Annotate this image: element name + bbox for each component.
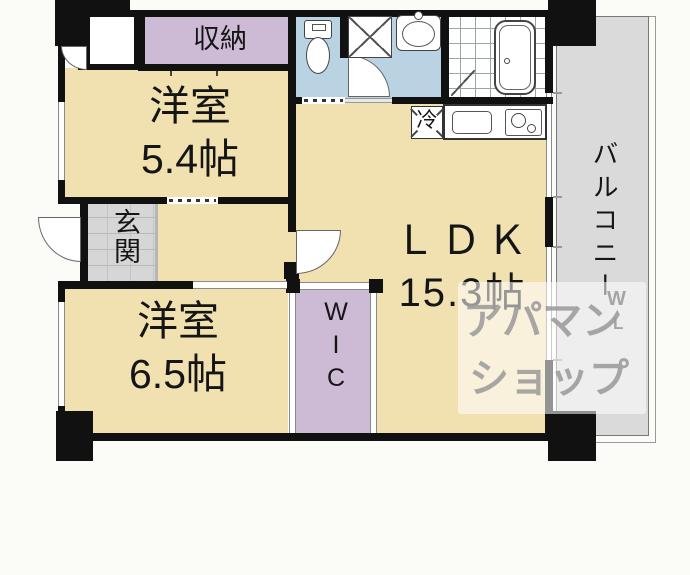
bedroom-small-label: 洋室 bbox=[90, 85, 290, 128]
entrance-label: 玄関 bbox=[106, 208, 145, 266]
bathtub-drain bbox=[504, 58, 510, 64]
basin-tap-icon bbox=[414, 11, 423, 20]
door-threshold bbox=[345, 98, 392, 103]
wic-partition bbox=[289, 293, 296, 433]
window-tick bbox=[553, 196, 562, 198]
window-tick bbox=[553, 246, 562, 248]
watermark-line1: アパマン bbox=[463, 288, 622, 346]
entrance-step-line bbox=[155, 202, 158, 284]
wall-segment bbox=[80, 203, 88, 283]
bathtub-inner-line bbox=[499, 25, 531, 90]
wall-segment bbox=[58, 281, 193, 289]
stove-burner-icon bbox=[527, 124, 536, 133]
watermark-line2: ショップ bbox=[469, 346, 629, 404]
sliding-door bbox=[167, 197, 218, 204]
wic-label: WIC bbox=[321, 298, 350, 397]
refrigerator-label: 冷 bbox=[412, 110, 442, 132]
wall-segment bbox=[80, 10, 553, 17]
window bbox=[58, 302, 65, 406]
window bbox=[58, 102, 65, 180]
closet-door-tick bbox=[216, 71, 218, 76]
wall-segment bbox=[58, 433, 556, 441]
kitchen-sink-icon bbox=[452, 111, 492, 134]
wall-segment bbox=[340, 13, 348, 58]
ldk-label: ＬＤＫ bbox=[375, 220, 553, 262]
watermark-mark-bottom: L bbox=[613, 314, 623, 334]
pillar bbox=[56, 411, 93, 461]
bedroom-large-label: 洋室 bbox=[78, 300, 278, 343]
washer-pan-icon bbox=[348, 16, 392, 58]
window-tick bbox=[553, 92, 562, 94]
toilet-bowl-icon bbox=[306, 37, 330, 74]
entry-door-arc bbox=[38, 217, 81, 262]
pillar bbox=[548, 411, 596, 461]
bath-folding-door bbox=[451, 70, 475, 96]
wall-segment bbox=[58, 197, 167, 204]
stove-burner-icon bbox=[511, 113, 526, 128]
bedroom-small-area: 5.4帖 bbox=[90, 138, 290, 181]
hallway bbox=[152, 200, 296, 285]
refrigerator-space: 冷 bbox=[411, 106, 443, 139]
toilet-flush-button bbox=[312, 24, 326, 31]
closet-door-tick bbox=[170, 71, 172, 76]
watermark-mark-top: W bbox=[607, 288, 626, 311]
wall-segment bbox=[441, 13, 449, 97]
wall-segment bbox=[392, 97, 553, 104]
bathtub-icon bbox=[494, 20, 536, 95]
storage-label: 収納 bbox=[150, 25, 290, 53]
meter-box bbox=[86, 13, 138, 68]
balcony-label: バルコニー bbox=[586, 140, 623, 305]
wic-partition bbox=[300, 282, 369, 290]
wall-segment bbox=[138, 64, 296, 71]
sliding-door bbox=[302, 97, 345, 104]
basin-bowl-icon bbox=[402, 21, 435, 47]
wic-partition bbox=[370, 293, 377, 433]
wall-segment bbox=[286, 279, 300, 293]
pillar bbox=[55, 0, 86, 46]
pillar bbox=[548, 0, 596, 46]
sliding-door bbox=[193, 281, 287, 289]
floor-plan: 冷 収納 洋室 5.4帖 玄関 洋室 6.5帖 WIC ＬＤＫ 15.3帖 バル… bbox=[0, 0, 690, 575]
bedroom-large-area: 6.5帖 bbox=[78, 353, 278, 396]
wall-segment bbox=[288, 97, 302, 104]
wall-segment bbox=[218, 197, 296, 204]
